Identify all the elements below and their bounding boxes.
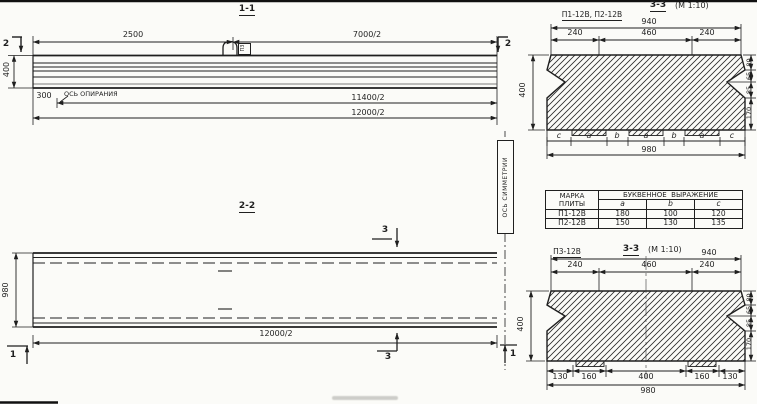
cut-mark-3-top: 3 [379,226,391,236]
dim-label-11400-2: 11400/2 [342,94,394,103]
dim-label-300: 300 [33,92,55,101]
letter-dim-a3: a [692,132,712,141]
dim-label-7000-2: 7000/2 [341,31,393,40]
cut-mark-3-bottom: 3 [382,353,394,363]
dim-label-460: 460 [631,29,667,38]
dim-label-980-bottom: 980 [628,387,668,396]
table-cell-a: 150 [599,219,647,229]
table-row: П2-12В 150 130 135 [546,219,743,229]
dim-label-height-400: 400 [3,53,12,86]
lifting-loop-tag: П3 [241,43,247,53]
dim-label-940-bottom: 940 [691,249,727,258]
slab-cross-section-bottom [547,291,745,361]
table-cell-mark: П2-12В [546,219,599,229]
scan-smudge [332,396,398,400]
plate-marks-label: П1-12В, П2-12В [547,11,637,19]
dim-label-240b-right: 240 [692,261,722,270]
dim-label-80-top: 80 [746,55,753,70]
dim-label-65-top: 65 [746,70,753,82]
cut-mark-2-right: 2 [503,40,513,50]
cut-mark-1-right: 1 [508,350,518,360]
dim-label-240b-left: 240 [560,261,590,270]
dim-label-2500: 2500 [110,31,156,40]
section-2-2-linework [7,228,517,364]
bearing-axis-label: ОСЬ ОПИРАНИЯ [64,91,164,98]
cut-mark-2-left: 2 [1,40,11,50]
section-2-2-title: 2-2 [230,202,264,212]
table-col-b: b [647,200,695,210]
dim-label-400-bottom: 400 [628,373,664,382]
dim-label-240-left: 240 [560,29,590,38]
letter-dim-b2: b [664,132,684,141]
letter-dim-a1: a [579,132,599,141]
letter-dim-c1: c [549,132,569,141]
dim-label-170-bottom: 170 [746,329,753,359]
table-col-a: a [599,200,647,210]
dim-label-80-bottom: 80 [746,290,753,305]
section-3-3-bottom-title: 3-3 [618,245,644,255]
dim-label-240-right: 240 [692,29,722,38]
letter-dim-c2: c [722,132,742,141]
letter-dim-a2: a [636,132,656,141]
section-3-3-top-scale: (М 1:10) [675,2,729,11]
dim-label-980-top: 980 [629,146,669,155]
section-1-1-title: 1-1 [230,5,264,15]
table-col-c: c [695,200,743,210]
table-cell-b: 130 [647,219,695,229]
dim-label-160-right: 160 [687,373,717,382]
symmetry-axis-label: ОСЬ СИММЕТРИИ [497,140,514,234]
section-3-3-top-title: 3-3 [645,1,671,11]
dim-label-12000-2-plan: 12000/2 [248,330,304,339]
slab-cross-section-top [547,55,745,130]
dim-label-160-left: 160 [574,373,604,382]
section-3-3-bottom-linework [526,255,756,390]
dim-label-400-top: 400 [519,73,528,107]
dim-label-400-bottom-left: 400 [517,307,526,341]
dim-label-170-top: 170 [746,98,753,128]
dim-label-130-left: 130 [547,373,573,382]
letter-dim-b1: b [607,132,627,141]
table-head-mark: МАРКАПЛИТЫ [546,191,599,210]
letter-values-table: МАРКАПЛИТЫ БУКВЕННОЕ ВЫРАЖЕНИЕ a b c П1-… [545,190,743,229]
section-1-1-linework [8,36,508,125]
dim-label-130-right: 130 [716,373,744,382]
cut-mark-1-left: 1 [8,351,18,361]
dim-label-940-top: 940 [631,18,667,27]
dim-label-85-top: 85 [746,82,753,98]
dim-label-460b: 460 [631,261,667,270]
plate-mark-p3-label: П3-12В [543,248,591,256]
engineering-drawing-sheet: 1-1 2500 7000/2 2 400 300 ОСЬ ОПИРАНИЯ 1… [0,0,757,404]
dim-label-12000-2: 12000/2 [342,109,394,118]
table-cell-c: 135 [695,219,743,229]
lifting-loop-icon [223,42,237,56]
dim-label-width-980: 980 [2,268,11,312]
